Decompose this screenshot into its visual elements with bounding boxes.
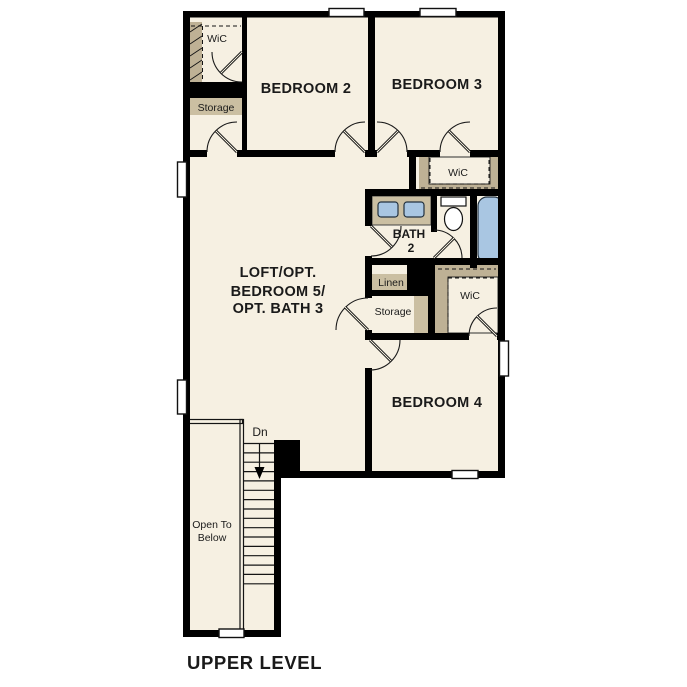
- bedroom3-label: BEDROOM 3: [392, 77, 483, 93]
- floor-plan-page: WiC Storage BEDROOM 2 BEDROOM 3 WiC BATH…: [0, 0, 687, 687]
- wall-bedroom2-bedroom3: [368, 11, 375, 157]
- open-below-label-line2: Below: [198, 532, 227, 544]
- wall-hall-b: [237, 150, 335, 157]
- window-bedroom4-right: [500, 341, 509, 376]
- wall-wic3-left: [409, 152, 416, 192]
- window-bedroom2-top: [329, 9, 364, 17]
- wall-bedroom4-top-a: [365, 333, 469, 340]
- plan-title: UPPER LEVEL: [187, 652, 322, 673]
- storage-hall-band: [414, 296, 428, 333]
- wall-loft-linen: [365, 256, 372, 298]
- wic3-label: WiC: [448, 167, 468, 179]
- wall-loft-stub: [365, 330, 372, 340]
- wall-wic4-left: [428, 265, 435, 340]
- sink-left: [378, 202, 398, 217]
- linen-label: Linen: [378, 277, 404, 289]
- floor-plan-drawing: WiC Storage BEDROOM 2 BEDROOM 3 WiC BATH…: [0, 0, 687, 687]
- window-left-lower: [178, 380, 187, 414]
- bath2-label-line2: 2: [408, 241, 415, 255]
- storage-upper-label: Storage: [198, 102, 235, 114]
- wall-toilet-tub: [470, 192, 477, 268]
- wic4-label: WiC: [460, 290, 480, 302]
- wall-loft-bath: [365, 189, 372, 226]
- wall-hall-a: [183, 150, 207, 157]
- bedroom4-label: BEDROOM 4: [392, 395, 483, 411]
- wic2-label: WiC: [207, 33, 227, 45]
- wall-linen-bottom: [365, 290, 433, 296]
- toilet-tank: [441, 197, 466, 206]
- wall-loft-bedroom4: [365, 368, 372, 471]
- sink-right: [404, 202, 424, 217]
- window-bedroom4-bottom: [452, 471, 478, 479]
- stairs-dn-label: Dn: [252, 425, 267, 439]
- storage-hall-label: Storage: [375, 306, 412, 318]
- wall-right: [498, 11, 505, 478]
- wic4-inner: [448, 277, 498, 333]
- wall-bath-toilet: [431, 192, 437, 232]
- bath2-label-line1: BATH: [393, 227, 425, 241]
- loft-label-line3: OPT. BATH 3: [233, 301, 324, 317]
- wall-stairwell-right: [274, 440, 281, 637]
- wall-left: [183, 11, 190, 637]
- bedroom2-label: BEDROOM 2: [261, 81, 352, 97]
- loft-label-line1: LOFT/OPT.: [240, 265, 317, 281]
- window-left-upper: [178, 162, 187, 197]
- wall-hall-c: [365, 150, 377, 157]
- wall-bedroom4-top-b: [497, 333, 505, 340]
- toilet-bowl: [445, 208, 463, 231]
- loft-label-line2: BEDROOM 5/: [231, 284, 326, 300]
- wall-bath-bottom: [365, 258, 505, 265]
- wall-hall-e: [470, 150, 505, 157]
- wic4-surround-left: [435, 265, 448, 333]
- open-below-label-line1: Open To: [192, 519, 232, 531]
- window-stairwell-bottom: [219, 629, 244, 638]
- wall-wic2-storage: [183, 82, 247, 98]
- window-bedroom3-top: [420, 9, 456, 17]
